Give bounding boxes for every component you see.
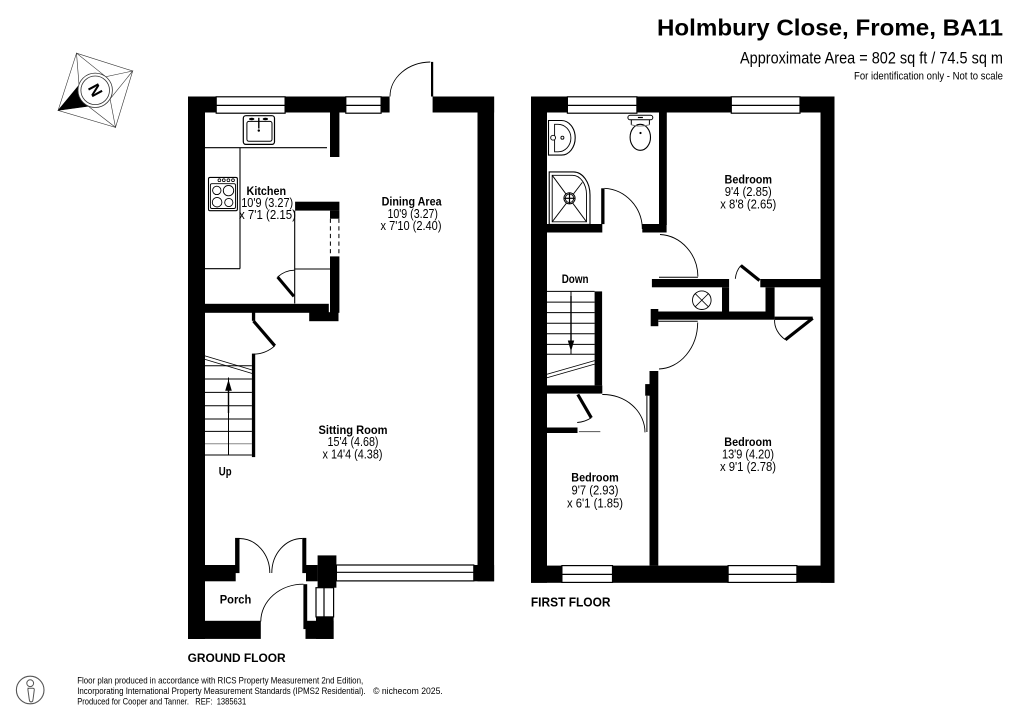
svg-text:Floor plan produced in accorda: Floor plan produced in accordance with R… (77, 675, 363, 686)
svg-text:x 6'1 (1.85): x 6'1 (1.85) (567, 495, 623, 510)
svg-text:x 14'4 (4.38): x 14'4 (4.38) (323, 446, 383, 461)
svg-text:x 7'10 (2.40): x 7'10 (2.40) (381, 218, 442, 233)
svg-text:Produced for Cooper and Tanner: Produced for Cooper and Tanner. REF: 138… (77, 696, 246, 707)
svg-text:FIRST FLOOR: FIRST FLOOR (531, 594, 611, 609)
svg-text:x 8'8 (2.65): x 8'8 (2.65) (720, 197, 776, 212)
svg-text:Holmbury Close, Frome, BA11: Holmbury Close, Frome, BA11 (657, 14, 1003, 40)
svg-text:x 9'1 (2.78): x 9'1 (2.78) (720, 459, 776, 474)
svg-text:Approximate Area = 802 sq ft /: Approximate Area = 802 sq ft / 74.5 sq m (740, 49, 1003, 68)
svg-text:Up: Up (219, 464, 232, 478)
svg-text:For identification only - Not: For identification only - Not to scale (854, 71, 1003, 83)
svg-text:Incorporating International Pr: Incorporating International Property Mea… (77, 686, 366, 697)
svg-text:Down: Down (562, 272, 589, 286)
svg-text:GROUND FLOOR: GROUND FLOOR (188, 651, 286, 665)
svg-text:Porch: Porch (220, 592, 252, 606)
svg-text:x 7'1 (2.15): x 7'1 (2.15) (239, 207, 296, 222)
svg-text:© nichecom 2025.: © nichecom 2025. (373, 686, 443, 697)
